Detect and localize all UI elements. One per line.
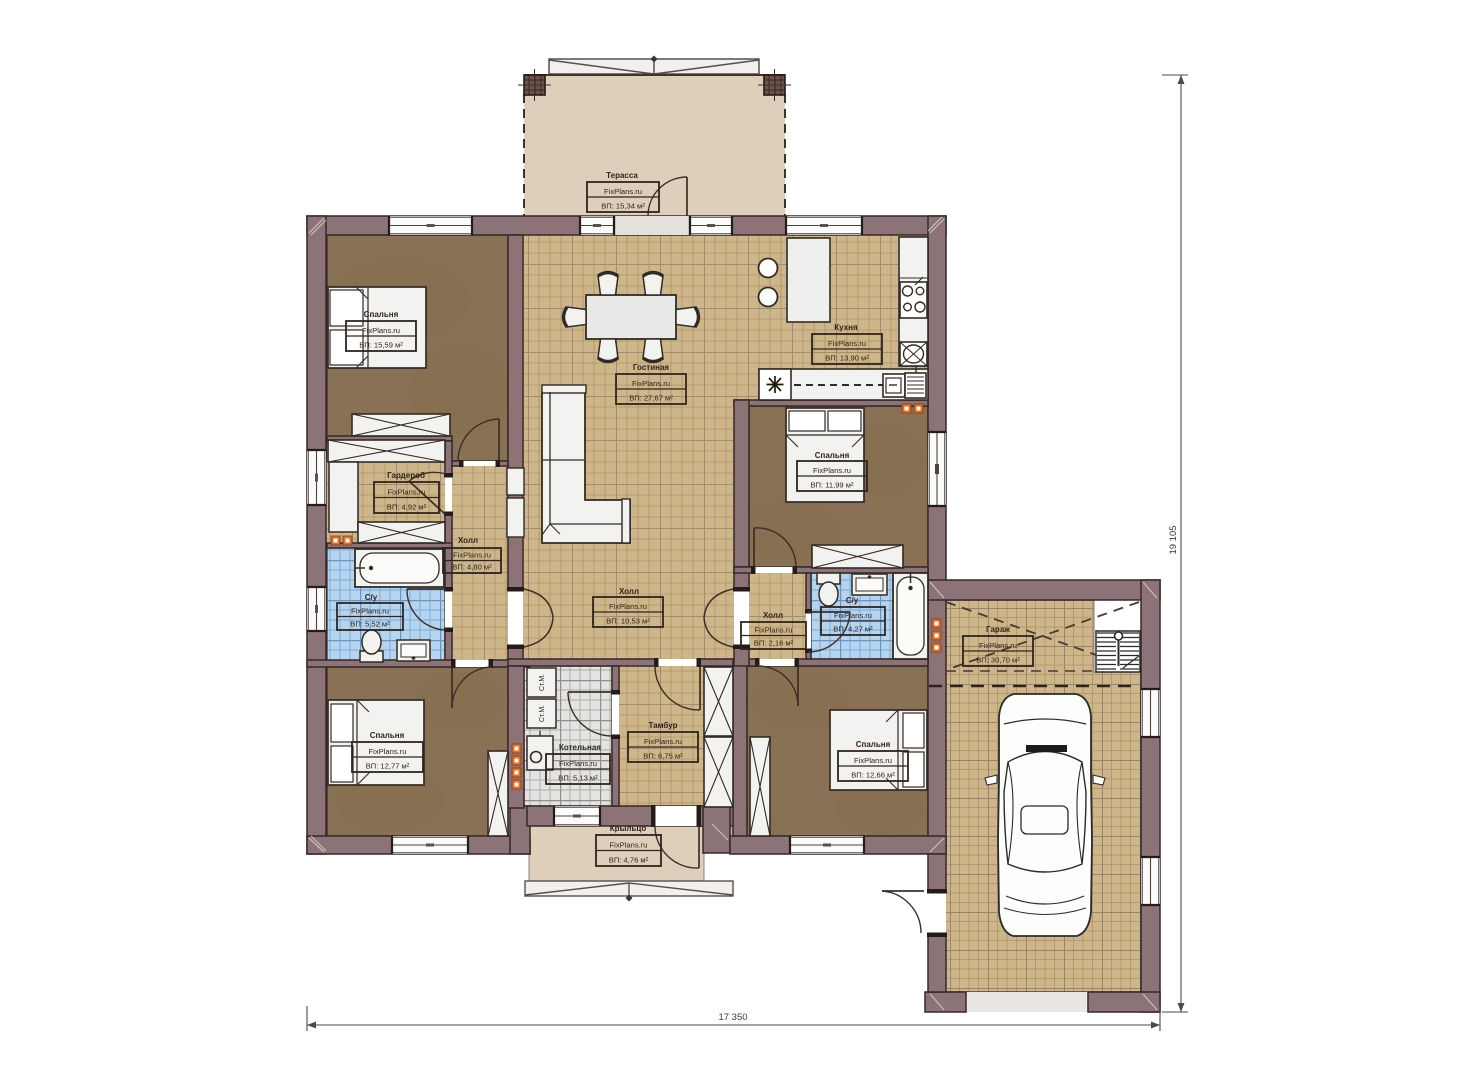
svg-text:ВП: 4,27 м²: ВП: 4,27 м² <box>833 624 873 633</box>
svg-text:ВП: 30,70 м²: ВП: 30,70 м² <box>976 655 1020 664</box>
svg-text:FixPlans.ru: FixPlans.ru <box>834 611 872 620</box>
svg-text:FixPlans.ru: FixPlans.ru <box>632 379 670 388</box>
svg-text:FixPlans.ru: FixPlans.ru <box>979 641 1017 650</box>
svg-text:ВП: 2,16 м²: ВП: 2,16 м² <box>754 638 794 647</box>
svg-text:ВП: 12,77 м²: ВП: 12,77 м² <box>366 761 410 770</box>
svg-text:Спальня: Спальня <box>370 731 405 740</box>
svg-text:ВП: 4,92 м²: ВП: 4,92 м² <box>387 502 427 511</box>
svg-text:ВП: 11,99 м²: ВП: 11,99 м² <box>810 480 854 489</box>
svg-text:Холл: Холл <box>763 611 783 620</box>
svg-text:ВП: 10,53 м²: ВП: 10,53 м² <box>606 616 650 625</box>
svg-text:ВП: 4,76 м²: ВП: 4,76 м² <box>609 855 649 864</box>
svg-text:ВП: 15,34 м²: ВП: 15,34 м² <box>601 201 645 210</box>
svg-text:FixPlans.ru: FixPlans.ru <box>604 187 642 196</box>
svg-text:ВП: 13,90 м²: ВП: 13,90 м² <box>825 353 869 362</box>
svg-text:Крыльцо: Крыльцо <box>610 824 647 833</box>
svg-text:FixPlans.ru: FixPlans.ru <box>369 747 407 756</box>
svg-text:Спальня: Спальня <box>856 740 891 749</box>
svg-text:Холл: Холл <box>619 587 639 596</box>
svg-text:Тамбур: Тамбур <box>648 721 677 730</box>
svg-text:FixPlans.ru: FixPlans.ru <box>559 759 597 768</box>
svg-text:ВП: 5,52 м²: ВП: 5,52 м² <box>350 619 390 628</box>
svg-text:Спальня: Спальня <box>815 451 850 460</box>
svg-text:Кухня: Кухня <box>834 323 858 332</box>
svg-text:FixPlans.ru: FixPlans.ru <box>362 326 400 335</box>
svg-text:FixPlans.ru: FixPlans.ru <box>388 487 426 496</box>
svg-text:FixPlans.ru: FixPlans.ru <box>854 756 892 765</box>
svg-text:FixPlans.ru: FixPlans.ru <box>610 840 648 849</box>
svg-text:ВП: 27,67 м²: ВП: 27,67 м² <box>629 393 673 402</box>
svg-text:FixPlans.ru: FixPlans.ru <box>644 737 682 746</box>
svg-text:Гостиная: Гостиная <box>633 363 669 372</box>
svg-text:Холл: Холл <box>458 536 478 545</box>
svg-text:С/у: С/у <box>365 593 378 602</box>
svg-text:ВП: 6,75 м²: ВП: 6,75 м² <box>643 751 683 760</box>
svg-text:FixPlans.ru: FixPlans.ru <box>453 550 491 559</box>
svg-text:FixPlans.ru: FixPlans.ru <box>609 602 647 611</box>
svg-text:19 105: 19 105 <box>1168 525 1179 554</box>
svg-text:Терасса: Терасса <box>606 171 638 180</box>
svg-text:ВП: 15,59 м²: ВП: 15,59 м² <box>359 340 403 349</box>
svg-text:Спальня: Спальня <box>364 310 399 319</box>
svg-text:Ст.М.: Ст.М. <box>539 674 546 691</box>
svg-text:Ст.М.: Ст.М. <box>539 705 546 722</box>
svg-text:FixPlans.ru: FixPlans.ru <box>755 625 793 634</box>
svg-text:С/у: С/у <box>846 596 859 605</box>
svg-text:ВП: 4,80 м²: ВП: 4,80 м² <box>452 562 492 571</box>
svg-text:Гараж: Гараж <box>986 625 1010 634</box>
svg-text:ВП: 12,66 м²: ВП: 12,66 м² <box>851 770 895 779</box>
svg-text:FixPlans.ru: FixPlans.ru <box>813 466 851 475</box>
svg-text:FixPlans.ru: FixPlans.ru <box>351 606 389 615</box>
svg-text:FixPlans.ru: FixPlans.ru <box>828 339 866 348</box>
svg-text:Гардероб: Гардероб <box>387 471 425 480</box>
svg-text:17 350: 17 350 <box>718 1012 747 1023</box>
svg-text:Котельная: Котельная <box>559 743 601 752</box>
svg-text:ВП: 5,13 м²: ВП: 5,13 м² <box>558 773 598 782</box>
